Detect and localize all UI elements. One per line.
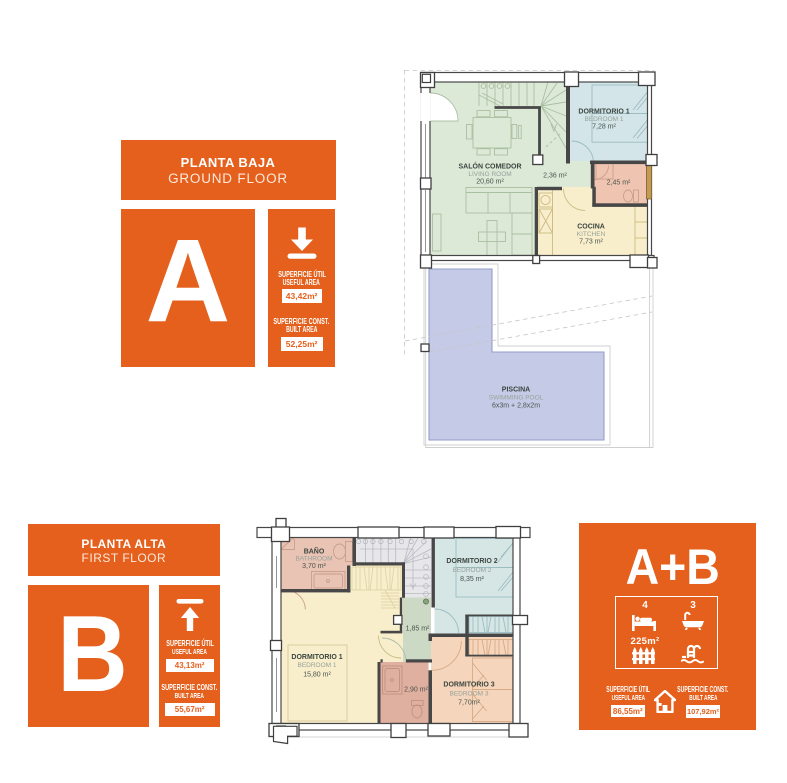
svg-text:BEDROOM 3: BEDROOM 3	[449, 690, 488, 697]
svg-text:7,70m²: 7,70m²	[458, 700, 480, 707]
svg-text:20,60 m²: 20,60 m²	[476, 178, 504, 185]
svg-text:2,36 m²: 2,36 m²	[543, 173, 567, 180]
svg-text:PISCINA: PISCINA	[502, 387, 530, 394]
svg-text:7,73 m²: 7,73 m²	[579, 239, 603, 246]
svg-text:DORMITORIO 2: DORMITORIO 2	[446, 558, 497, 565]
svg-text:8,35 m²: 8,35 m²	[460, 576, 484, 583]
svg-text:15,80 m²: 15,80 m²	[303, 671, 331, 678]
svg-text:DORMITORIO 1: DORMITORIO 1	[291, 654, 342, 661]
svg-text:SWIMMING POOL: SWIMMING POOL	[489, 395, 544, 402]
svg-text:3,70 m²: 3,70 m²	[302, 563, 326, 570]
svg-text:BEDROOM 2: BEDROOM 2	[452, 567, 491, 574]
svg-text:BAÑO: BAÑO	[304, 547, 325, 556]
svg-text:SALÓN COMEDOR: SALÓN COMEDOR	[459, 162, 522, 171]
svg-text:6x3m + 2,8x2m: 6x3m + 2,8x2m	[492, 403, 540, 410]
svg-text:LIVING ROOM: LIVING ROOM	[468, 171, 511, 178]
svg-text:DORMITORIO 1: DORMITORIO 1	[578, 109, 629, 116]
svg-text:BEDROOM 1: BEDROOM 1	[297, 662, 336, 669]
svg-text:7,28 m²: 7,28 m²	[592, 124, 616, 131]
svg-text:KITCHEN: KITCHEN	[577, 231, 606, 238]
svg-text:2,90 m²: 2,90 m²	[404, 687, 428, 694]
svg-text:2,45 m²: 2,45 m²	[607, 180, 631, 187]
svg-text:1,85 m²: 1,85 m²	[406, 626, 430, 633]
svg-text:BEDROOM 1: BEDROOM 1	[584, 116, 623, 123]
svg-text:COCINA: COCINA	[577, 224, 605, 231]
svg-text:DORMITORIO 3: DORMITORIO 3	[443, 681, 494, 688]
svg-text:BATHROOM: BATHROOM	[295, 556, 332, 563]
